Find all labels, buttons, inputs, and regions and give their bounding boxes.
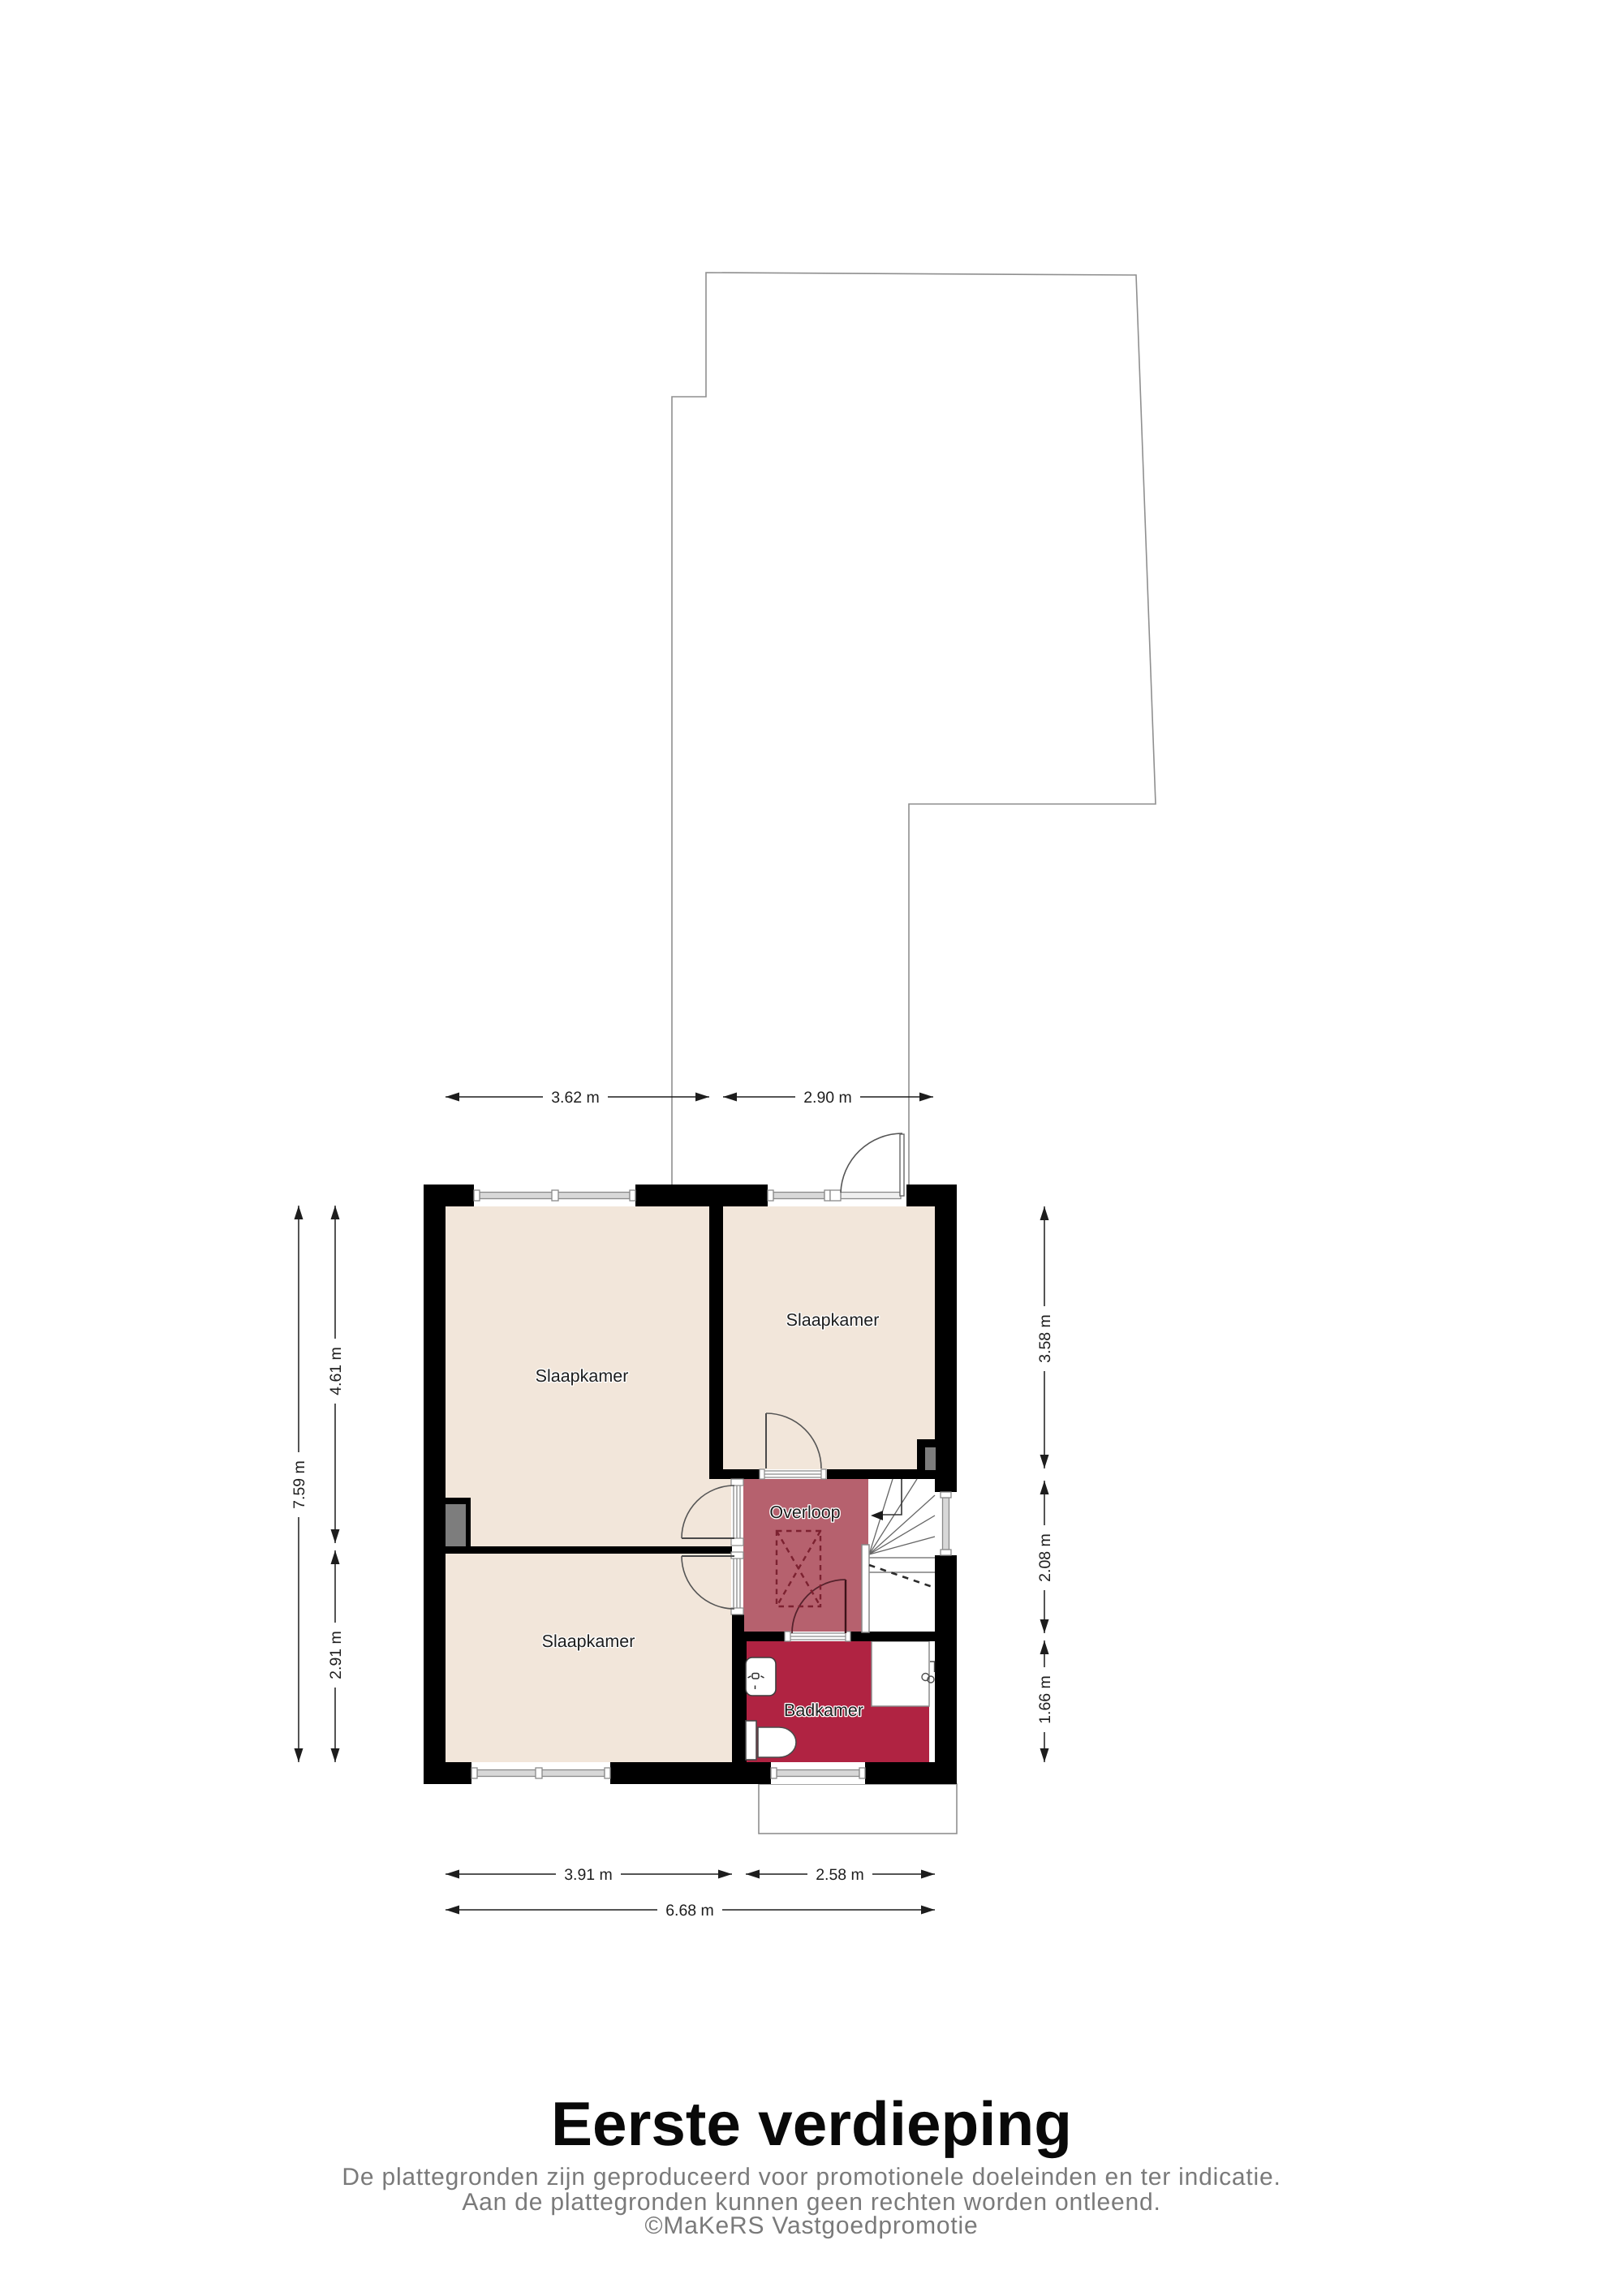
svg-text:Slaapkamer: Slaapkamer: [536, 1366, 629, 1386]
svg-text:7.59 m: 7.59 m: [291, 1460, 308, 1509]
svg-text:1.66 m: 1.66 m: [1036, 1675, 1054, 1724]
svg-text:2.90 m: 2.90 m: [803, 1089, 852, 1107]
svg-text:2.91 m: 2.91 m: [327, 1631, 345, 1679]
svg-text:4.61 m: 4.61 m: [327, 1347, 345, 1395]
svg-text:©MaKeRS Vastgoedpromotie: ©MaKeRS Vastgoedpromotie: [645, 2212, 979, 2239]
svg-text:3.58 m: 3.58 m: [1036, 1314, 1054, 1363]
svg-text:Overloop: Overloop: [769, 1503, 840, 1522]
svg-text:2.58 m: 2.58 m: [816, 1866, 864, 1884]
svg-text:3.62 m: 3.62 m: [551, 1089, 600, 1107]
svg-text:Slaapkamer: Slaapkamer: [542, 1632, 635, 1651]
svg-text:De plattegronden zijn geproduc: De plattegronden zijn geproduceerd voor …: [342, 2164, 1281, 2191]
svg-text:Badkamer: Badkamer: [784, 1701, 863, 1720]
svg-text:6.68 m: 6.68 m: [665, 1902, 714, 1920]
svg-text:2.08 m: 2.08 m: [1036, 1533, 1054, 1582]
svg-text:Slaapkamer: Slaapkamer: [786, 1310, 880, 1330]
svg-text:Eerste verdieping: Eerste verdieping: [551, 2090, 1072, 2159]
svg-text:3.91 m: 3.91 m: [564, 1866, 613, 1884]
